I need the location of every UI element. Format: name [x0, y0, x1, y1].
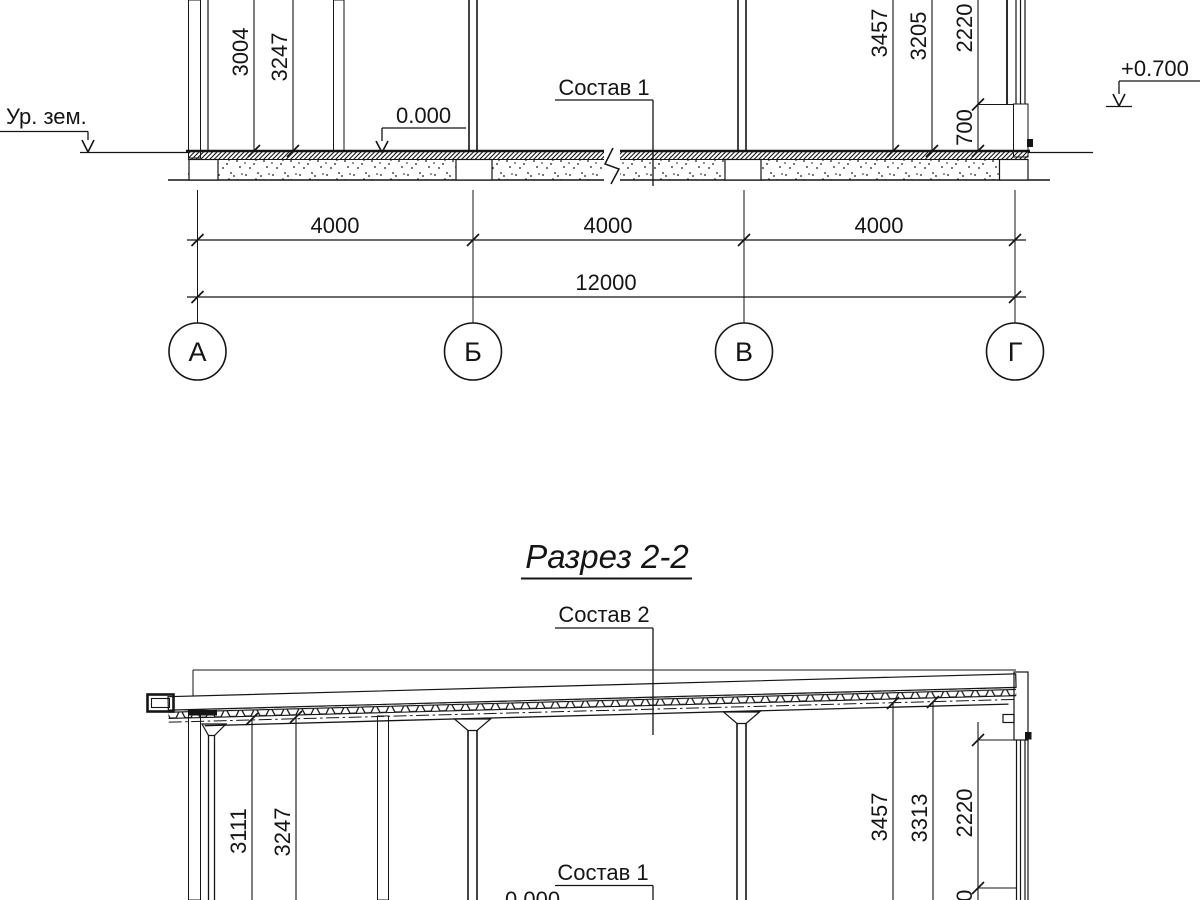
dim-label-2220: 2220 [952, 789, 977, 838]
axis-label-v: В [735, 337, 753, 367]
s2-left-corbel-column [202, 724, 226, 900]
axis-label-a: А [188, 337, 206, 367]
s1-column-v [738, 0, 746, 151]
total-dim: 12000 [575, 270, 636, 295]
dim-label-3247: 3247 [267, 33, 292, 82]
dim-label-3313: 3313 [907, 794, 932, 843]
dim-label-3247: 3247 [270, 808, 295, 857]
s2-zero-level-label: 0.000 [505, 887, 560, 900]
dim-ticks [248, 99, 984, 158]
layers1-label: Состав 1 [557, 860, 648, 885]
s1-break-gap [604, 149, 620, 182]
s2-wall-anchor-detail [1025, 732, 1032, 740]
s1-window-glazing-lines [1016, 0, 1025, 104]
s2-left-wall [189, 713, 201, 900]
s1-horizontal-dimensions: 4000 4000 4000 12000 [187, 190, 1026, 323]
section-2-title: Разрез 2-2 [521, 538, 692, 579]
s1-floor-slab [168, 148, 1050, 184]
page-title: Разрез 2-2 [525, 538, 689, 575]
dim-label-3457: 3457 [867, 793, 892, 842]
section-2: 3111 3247 3457 3313 2220 700 Состав 2 Со… [148, 602, 1032, 900]
s1-left-wall [189, 0, 201, 158]
dim-label-2220: 2220 [952, 4, 977, 53]
section-1: Ур. зем. 0.000 Состав 1 +0.700 3004 [0, 0, 1200, 380]
span-dim-3: 4000 [855, 213, 904, 238]
zero-level-label: 0.000 [396, 103, 451, 128]
s2-interior-wall [378, 716, 389, 900]
span-dim-1: 4000 [311, 213, 360, 238]
span-dim-2: 4000 [584, 213, 633, 238]
ground-level-label: Ур. зем. [6, 104, 87, 129]
dim-label-3457: 3457 [867, 9, 892, 58]
down-arrow-icon [1113, 94, 1125, 106]
s1-right-wall-sill-block [1014, 104, 1029, 157]
layers1-label: Состав 1 [558, 75, 649, 100]
s1-interior-wall [334, 0, 345, 151]
dim-label-3111: 3111 [226, 808, 251, 854]
dim-label-700: 700 [952, 109, 977, 146]
down-arrow-icon [82, 140, 94, 152]
s2-column-v [724, 712, 760, 900]
s2-layers1-callout: Состав 1 [555, 860, 653, 900]
dim-label-3205: 3205 [906, 12, 931, 61]
s1-zero-level-mark: 0.000 [376, 103, 466, 153]
s1-ground-level-callout: Ур. зем. [0, 104, 94, 152]
layers2-label: Состав 2 [558, 602, 649, 627]
s2-column-b [455, 719, 491, 900]
s1-column-b [469, 0, 477, 151]
axis-label-b: Б [464, 337, 482, 367]
dim-label-700-partial: 700 [952, 890, 977, 900]
axis-label-g: Г [1008, 337, 1023, 367]
elevation-label: +0.700 [1121, 56, 1189, 81]
dim-label-3004: 3004 [228, 28, 253, 77]
s2-window-glazing-lines [1017, 740, 1029, 900]
s1-axis-bubbles: А Б В Г [169, 323, 1044, 380]
s2-beam-seat [1003, 715, 1014, 723]
drawing-canvas: Ур. зем. 0.000 Состав 1 +0.700 3004 [0, 0, 1200, 900]
s1-elevation-mark: +0.700 [1106, 56, 1200, 107]
s1-wall-anchor-detail [1027, 139, 1033, 147]
